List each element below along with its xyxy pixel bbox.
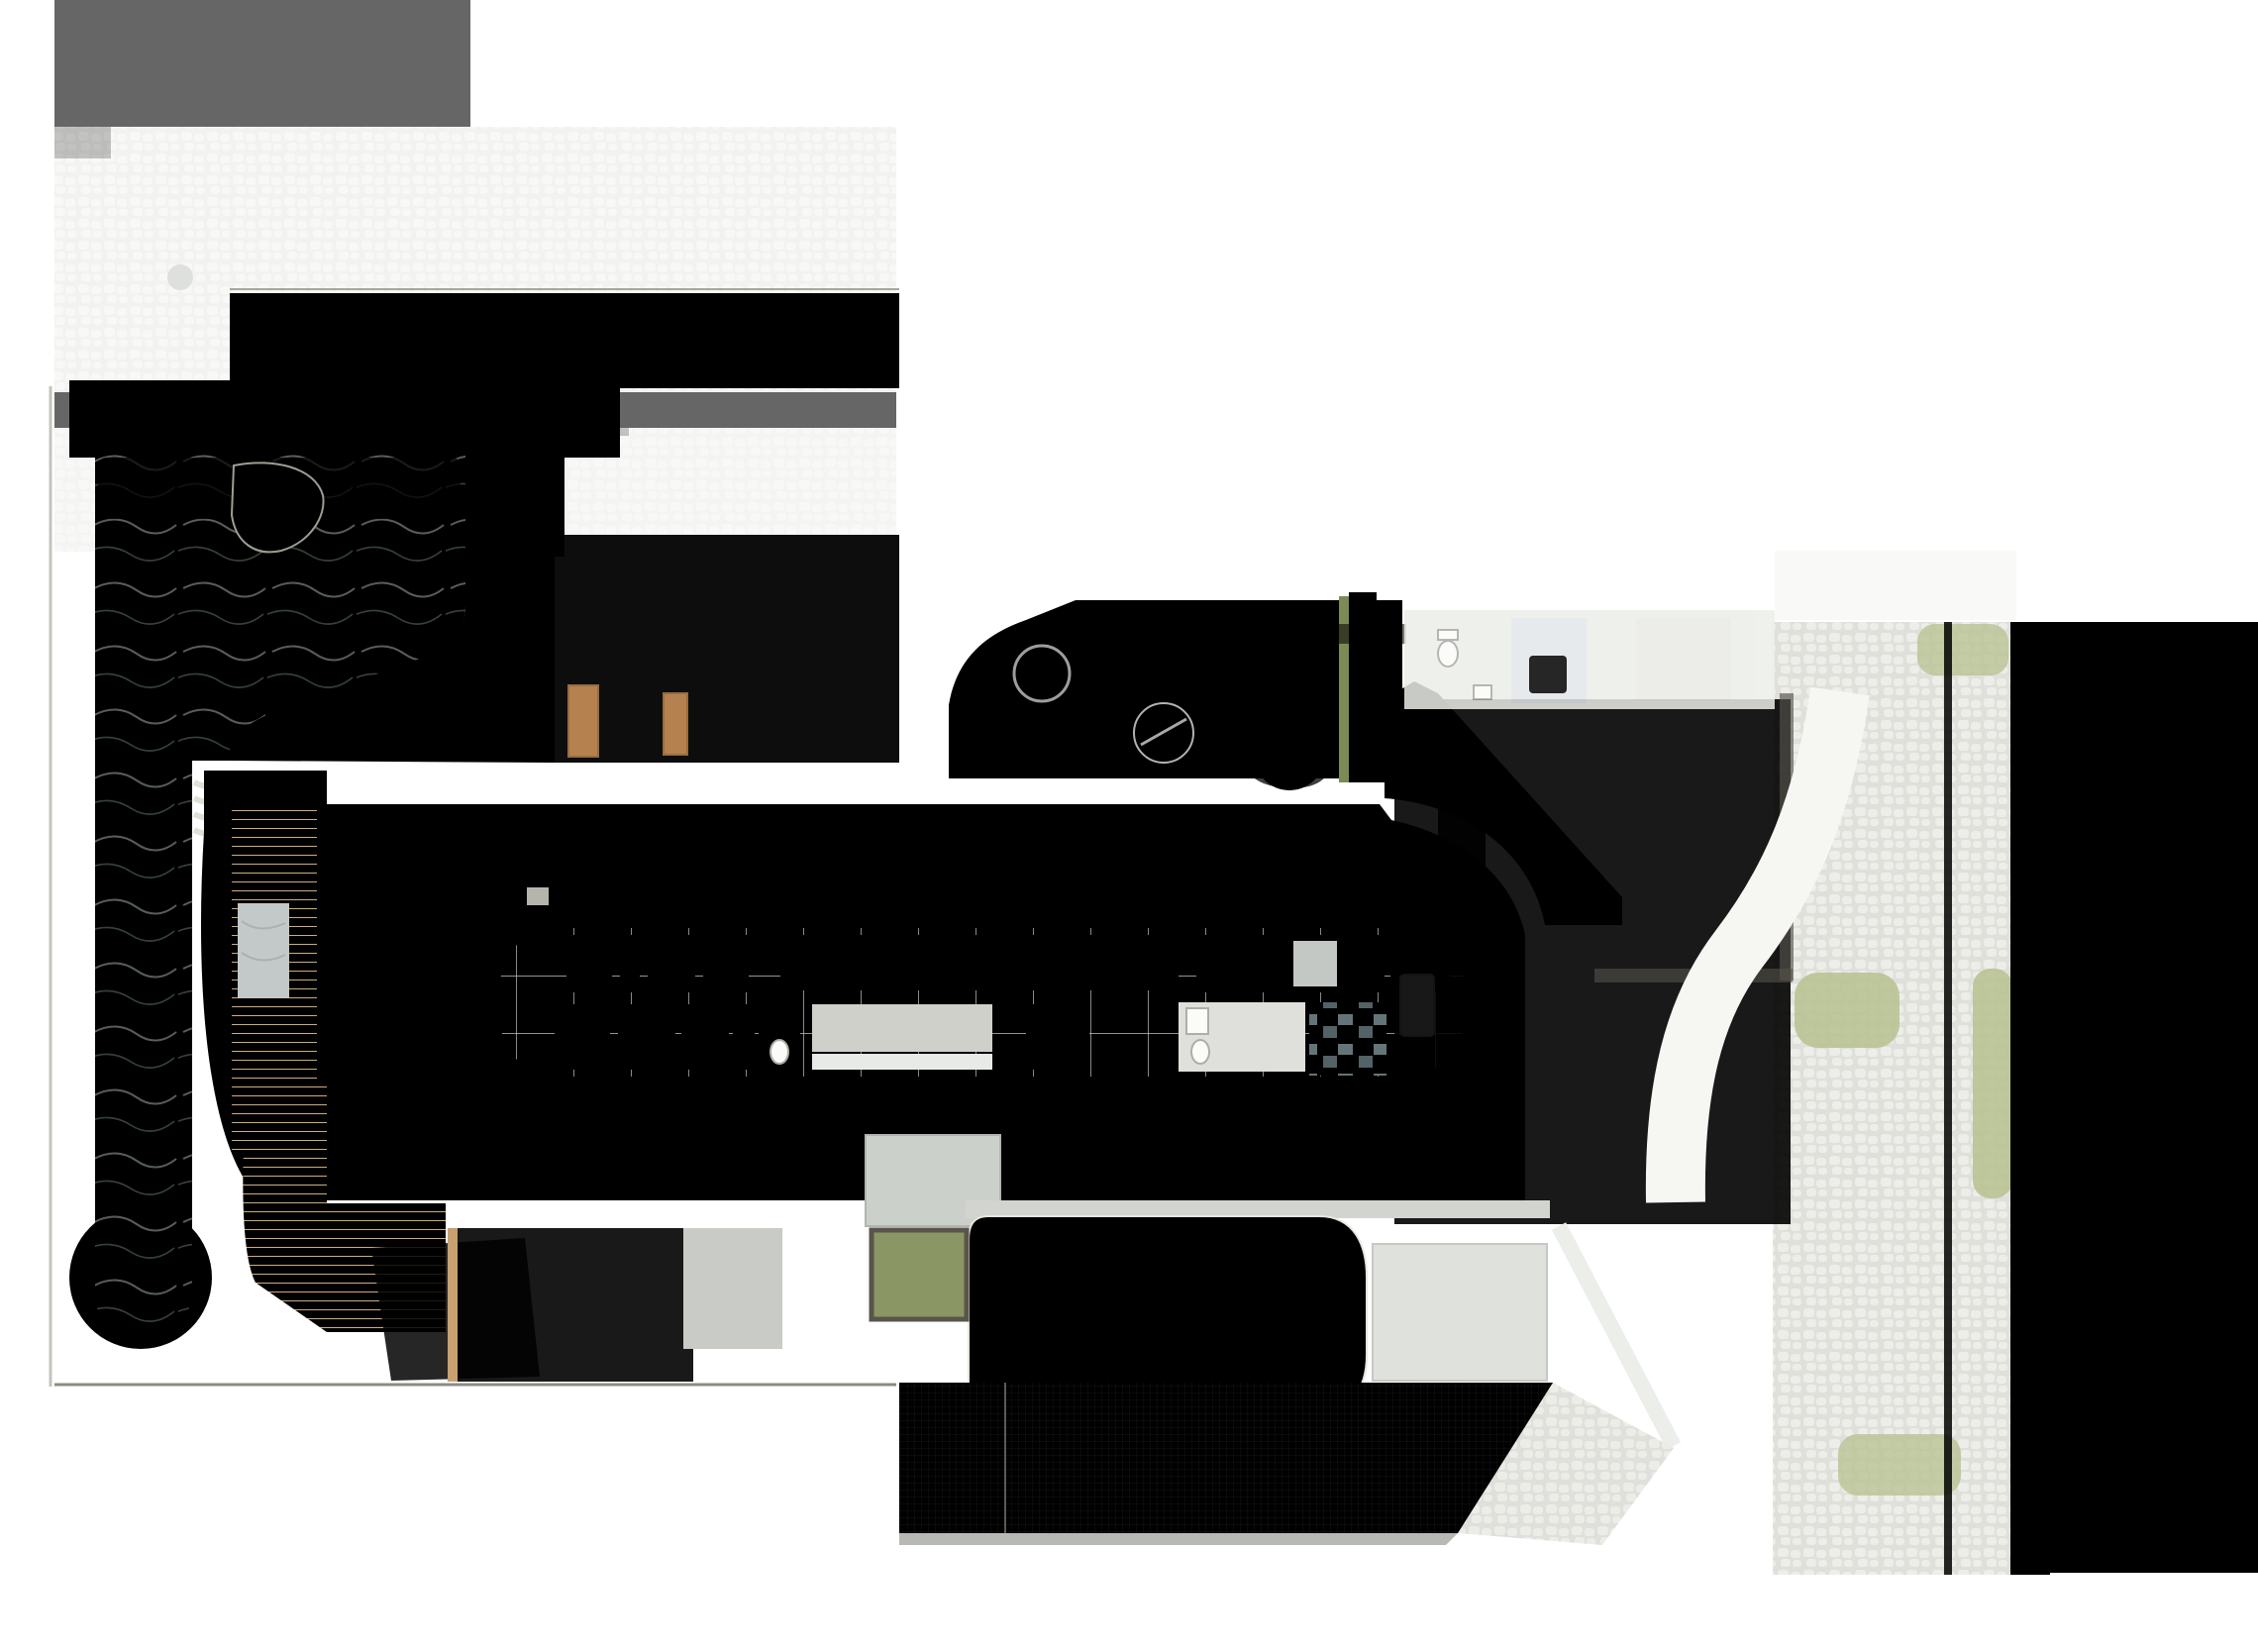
north-hedge-bed [230, 293, 899, 388]
context-table [167, 264, 193, 290]
kitchen-appliance [1293, 941, 1337, 986]
planter-box [664, 693, 687, 755]
sidewalk-grass-patch [1838, 1434, 1961, 1496]
stepping-pad [1107, 808, 1165, 866]
south-stone-garden [448, 1228, 693, 1382]
toilet [1438, 641, 1458, 667]
tactile-guide-strip [1944, 622, 1952, 1575]
neighbor-building-roof [54, 0, 470, 127]
stair-landing [812, 1054, 992, 1070]
room [648, 935, 695, 992]
south-concrete-pad [683, 1228, 782, 1349]
stair-core [812, 1004, 992, 1052]
elevator [618, 1004, 675, 1070]
reading-nook [872, 1230, 967, 1319]
glazed-lounge [780, 935, 1179, 990]
curb [2010, 622, 2050, 1575]
toilet [770, 1040, 788, 1064]
site-plan-canvas [0, 0, 2258, 1652]
stepping-pad [1173, 804, 1240, 856]
stepping-pad [1184, 885, 1278, 925]
bar-marble-counter [238, 903, 289, 998]
cistern [1438, 630, 1458, 640]
column [527, 887, 549, 905]
site-plan-svg [0, 0, 2258, 1652]
kitchen-appliance [1236, 941, 1289, 986]
stepping-pad [519, 1082, 586, 1163]
toilet [1191, 1040, 1209, 1064]
sidewalk-grass-patch [1917, 624, 2008, 675]
play-circle [1254, 719, 1325, 790]
neighbor-wall-band [1260, 624, 1406, 644]
accessible-tile [1529, 656, 1567, 693]
sidewalk-grass-patch [1795, 973, 1899, 1048]
paving-north-west [465, 887, 634, 925]
stone-court [555, 535, 899, 763]
wc-block [1404, 610, 1775, 709]
room [703, 935, 749, 992]
neighbor-rooms-east [1775, 551, 2016, 620]
room [620, 935, 640, 992]
stepping-pad [1246, 824, 1293, 876]
playground [949, 592, 1402, 790]
stepping-pad [660, 1091, 693, 1137]
sink [1474, 685, 1491, 699]
lounge-grass-strip [404, 979, 465, 1022]
stepping-pad [319, 1081, 506, 1173]
sidewalk-grass-patch [1973, 969, 2012, 1198]
pool-lawn-east [465, 436, 564, 557]
play-trampoline [1014, 646, 1070, 701]
street-asphalt [2050, 622, 2258, 1573]
planter-box [568, 685, 598, 757]
elevator [555, 1004, 610, 1070]
stepping-pad [592, 1091, 660, 1169]
room [566, 935, 612, 992]
ramp-bottom-band [899, 1533, 1458, 1545]
room [1026, 1004, 1089, 1070]
room [681, 1004, 729, 1070]
entry-stair-upper [1636, 618, 1731, 701]
playground-wall [1349, 592, 1377, 782]
grand-stair [1373, 1244, 1547, 1381]
sink [1186, 1008, 1208, 1034]
lounge-grass-strip [404, 872, 465, 915]
timber-edge [448, 1228, 458, 1382]
spa-room [1309, 1002, 1386, 1076]
kitchen-island [1339, 941, 1381, 986]
ramp-grid [899, 1383, 1553, 1533]
stone-niche [733, 1004, 755, 1070]
